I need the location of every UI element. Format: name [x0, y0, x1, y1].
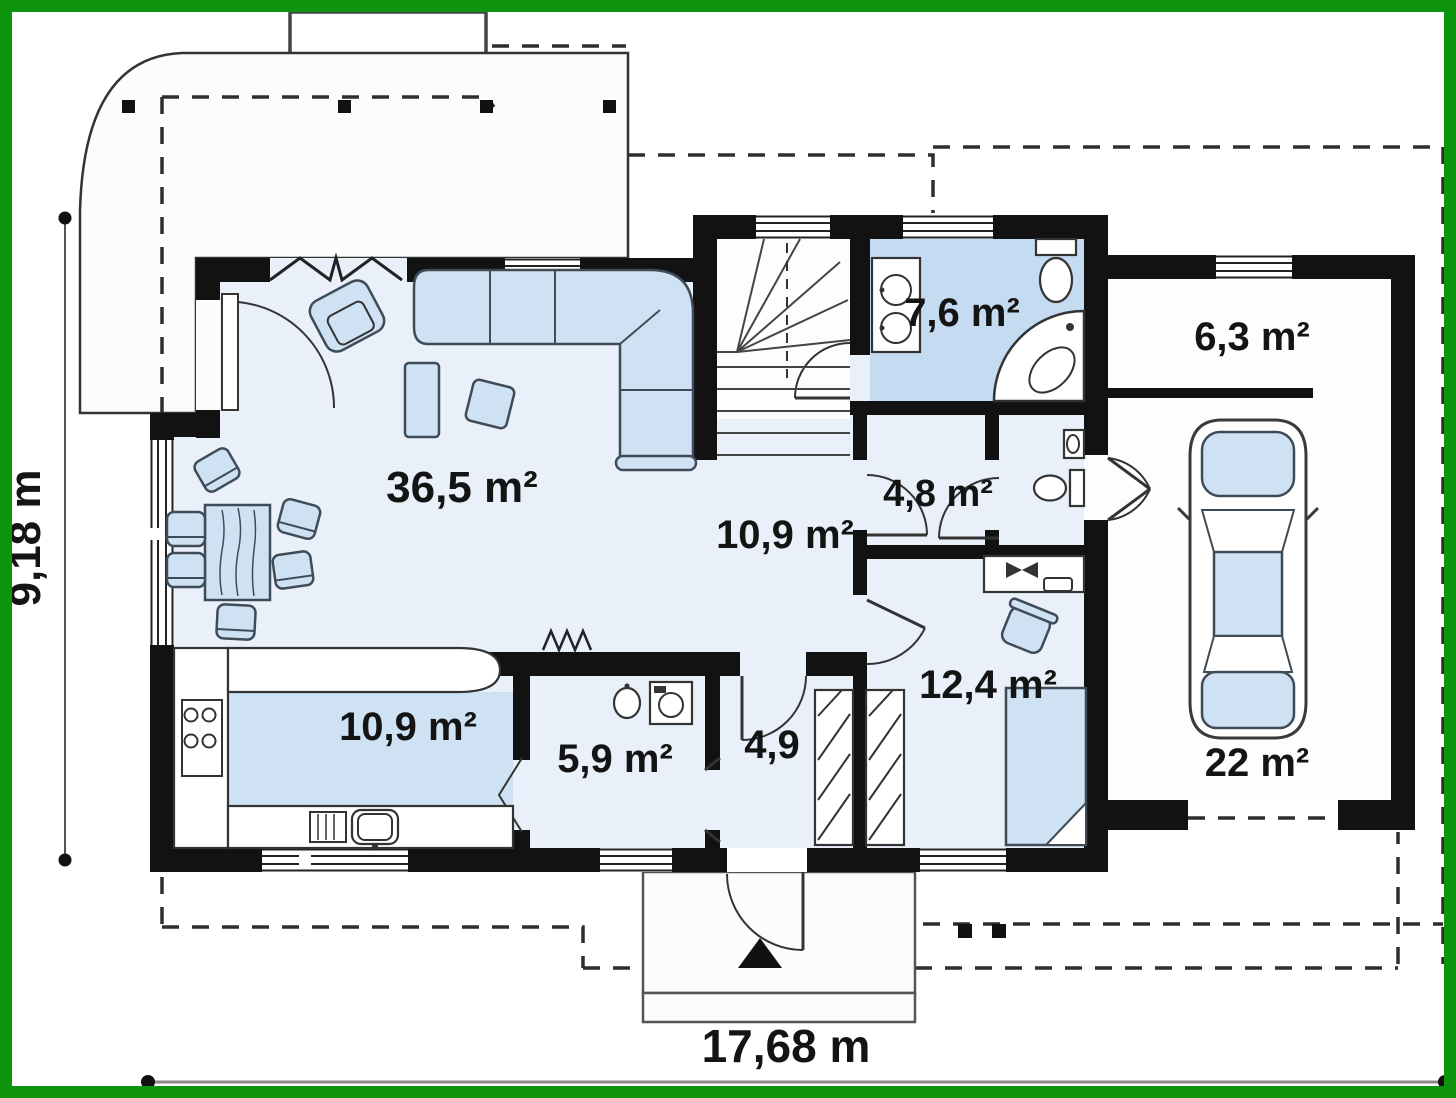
washing-machine-icon	[650, 682, 692, 724]
toilet-icon	[1036, 239, 1076, 302]
yard-post	[958, 924, 972, 938]
dining-chair	[216, 604, 256, 640]
car-windshield	[1202, 510, 1294, 552]
wc-sink-icon	[1064, 430, 1084, 458]
dining-chair	[167, 553, 205, 587]
width-dimension-label: 17,68 m	[702, 1020, 871, 1072]
wardrobe	[866, 690, 904, 845]
kitchen-counter-top	[228, 648, 500, 692]
room-label-living: 36,5 m²	[386, 463, 538, 512]
bed	[1006, 688, 1086, 845]
chimney	[290, 12, 486, 55]
garage-window	[1216, 255, 1292, 279]
room-label-kitchen: 10,9 m²	[339, 705, 477, 749]
room-label-garage: 22 m²	[1205, 741, 1310, 785]
terrace-post	[603, 100, 616, 113]
utility-fixtures	[614, 682, 692, 724]
porch-slab	[643, 872, 915, 993]
dining-chair	[167, 512, 205, 546]
car-trunk	[1202, 672, 1294, 728]
wardrobe	[815, 690, 853, 845]
kitchen-window	[262, 848, 408, 872]
terrace-post	[122, 100, 135, 113]
dining-chair	[272, 551, 314, 590]
terrace-post	[338, 100, 351, 113]
paving-edge	[893, 924, 1443, 964]
room-label-hall: 10,9 m²	[716, 513, 854, 557]
room-label-storage: 6,3 m²	[1194, 315, 1310, 359]
overhang-bottom-left	[162, 927, 583, 968]
floor-plan-drawing: 36,5 m² 10,9 m² 10,9 m² 5,9 m² 4,9 7,6 m…	[0, 0, 1456, 1098]
sofa-armrest	[616, 456, 696, 470]
floor-plan-page: 36,5 m² 10,9 m² 10,9 m² 5,9 m² 4,9 7,6 m…	[0, 0, 1456, 1098]
room-label-entrance: 4,9	[744, 723, 800, 767]
pouf	[465, 379, 516, 430]
terrace-post	[480, 100, 493, 113]
car	[1178, 420, 1318, 738]
stair-window	[756, 215, 830, 239]
utility-window	[600, 848, 672, 872]
car-roof	[1214, 552, 1282, 636]
room-label-utility: 5,9 m²	[557, 737, 673, 781]
yard-post	[992, 924, 1006, 938]
car-hood	[1202, 432, 1294, 496]
room-label-wc: 4,8 m²	[883, 473, 993, 515]
room-label-bedroom: 12,4 m²	[919, 663, 1057, 707]
porch-steps	[643, 993, 915, 1022]
bedroom-window	[920, 848, 1006, 872]
bathroom-window	[903, 215, 993, 239]
coffee-table	[405, 363, 439, 437]
overhang-top-step	[628, 155, 933, 213]
room-label-bathroom: 7,6 m²	[904, 291, 1020, 335]
car-rear-window	[1204, 636, 1292, 672]
stair-floor	[717, 239, 850, 419]
